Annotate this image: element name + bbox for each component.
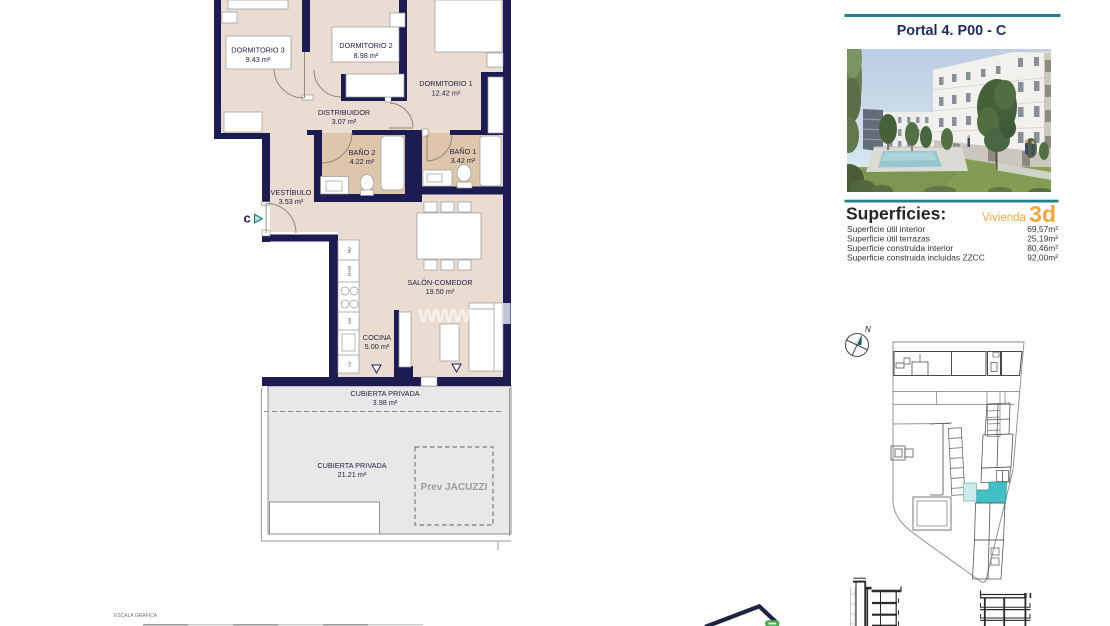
svg-text:4.22 m²: 4.22 m² xyxy=(350,157,375,166)
svg-text:Superficie útil interior: Superficie útil interior xyxy=(847,224,925,234)
svg-text:H+W: H+W xyxy=(347,265,352,276)
svg-text:21.21 m²: 21.21 m² xyxy=(338,470,367,479)
svg-text:3.42 m²: 3.42 m² xyxy=(451,156,476,165)
svg-text:www: www xyxy=(417,301,471,328)
svg-text:BAÑO 1: BAÑO 1 xyxy=(450,147,477,156)
svg-text:DORMITORIO 1: DORMITORIO 1 xyxy=(419,79,472,88)
svg-text:92,00m²: 92,00m² xyxy=(1027,253,1058,263)
svg-text:5.00 m²: 5.00 m² xyxy=(365,342,390,351)
svg-text:DORMITORIO 3: DORMITORIO 3 xyxy=(231,46,284,55)
svg-text:Superficie útil terrazas: Superficie útil terrazas xyxy=(847,234,930,244)
svg-text:3.98 m²: 3.98 m² xyxy=(373,398,398,407)
svg-text:ESCALA GRAFICA: ESCALA GRAFICA xyxy=(114,613,158,619)
svg-text:DORMITORIO 2: DORMITORIO 2 xyxy=(339,41,392,50)
svg-text:12.42 m²: 12.42 m² xyxy=(432,89,461,98)
svg-text:25,19m²: 25,19m² xyxy=(1027,234,1058,244)
svg-text:Portal 4. P00 - C: Portal 4. P00 - C xyxy=(897,23,1007,39)
svg-text:Superficie construida interior: Superficie construida interior xyxy=(847,243,953,253)
svg-text:DISTRIBUIDOR: DISTRIBUIDOR xyxy=(318,108,370,117)
svg-text:VESTÍBULO: VESTÍBULO xyxy=(271,188,312,197)
svg-text:9.43 m²: 9.43 m² xyxy=(246,55,271,64)
svg-text:Superficie construida incluida: Superficie construida incluidas ZZCC xyxy=(847,253,985,263)
svg-text:BAÑO 2: BAÑO 2 xyxy=(349,148,376,157)
svg-text:SALÓN-COMEDOR: SALÓN-COMEDOR xyxy=(407,278,472,287)
svg-text:COCINA: COCINA xyxy=(363,333,392,342)
svg-text:69,57m²: 69,57m² xyxy=(1027,224,1058,234)
svg-text:Prev JACUZZI: Prev JACUZZI xyxy=(421,482,488,493)
svg-text:CUBIERTA PRIVADA: CUBIERTA PRIVADA xyxy=(350,389,419,398)
svg-text:CUBIERTA PRIVADA: CUBIERTA PRIVADA xyxy=(317,461,386,470)
svg-text:c: c xyxy=(244,211,251,226)
svg-text:NV: NV xyxy=(347,246,352,253)
svg-text:80,46m²: 80,46m² xyxy=(1027,243,1058,253)
svg-text:3.07 m²: 3.07 m² xyxy=(332,117,357,126)
svg-text:Vivienda: Vivienda xyxy=(982,212,1027,224)
svg-text:3.53 m²: 3.53 m² xyxy=(279,197,304,206)
svg-text:8.98 m²: 8.98 m² xyxy=(354,51,379,60)
svg-text:19.50 m²: 19.50 m² xyxy=(426,287,455,296)
svg-text:N: N xyxy=(865,325,871,334)
svg-text:Superficies:: Superficies: xyxy=(846,204,946,224)
svg-text:LW: LW xyxy=(347,317,352,324)
